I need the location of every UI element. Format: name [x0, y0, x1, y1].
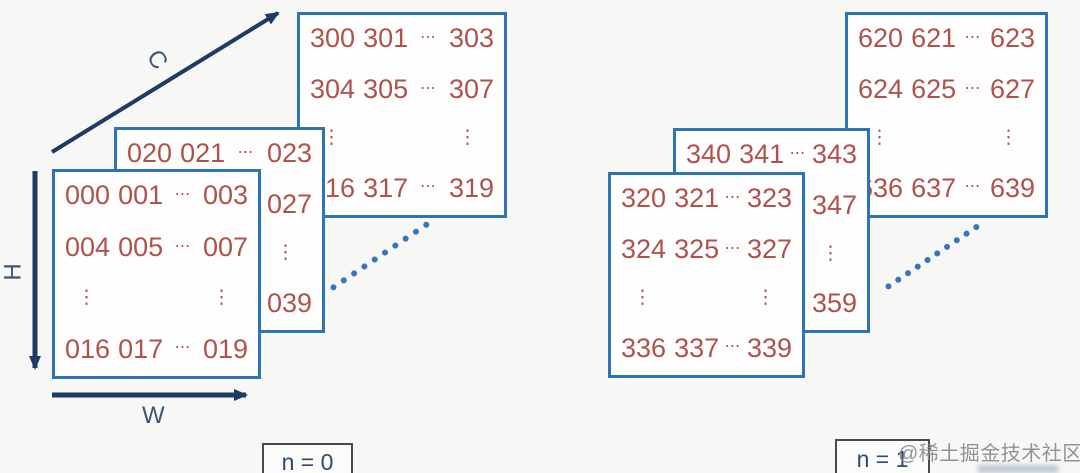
matrix-value: 343 [812, 140, 857, 168]
matrix-row: 300301⋯303 [300, 24, 504, 52]
matrix-value: 039 [267, 289, 312, 317]
matrix-value: 027 [267, 190, 312, 218]
vertical-ellipsis: ⋮ [633, 286, 652, 311]
matrix-row: 324325⋯327 [611, 235, 802, 263]
horizontal-ellipsis: ⋯ [163, 239, 203, 256]
vertical-ellipsis: ⋮ [276, 241, 295, 266]
matrix-value: 623 [990, 24, 1035, 52]
matrix-row: 636637⋯639 [848, 174, 1045, 202]
matrix-value: 005 [118, 233, 163, 261]
horizontal-ellipsis: ⋯ [719, 190, 747, 207]
matrix-value: 323 [747, 184, 792, 212]
matrix-value: 359 [812, 289, 857, 317]
matrix-value: 320 [621, 184, 666, 212]
batch-label-n0-text: n = 0 [282, 449, 334, 473]
matrix-value: 001 [118, 181, 163, 209]
horizontal-ellipsis: ⋯ [719, 339, 747, 356]
matrix-row: 340341⋯343 [676, 140, 867, 168]
matrix-value: 347 [812, 191, 857, 219]
matrix-value: 301 [363, 24, 408, 52]
watermark-text: @稀土掘金技术社区 [898, 437, 1080, 466]
tensor-layout-diagram: C H W 300301⋯303304305⋯307⋮⋮316317⋯319 0… [0, 0, 1080, 473]
vertical-ellipsis: ⋮ [821, 242, 840, 267]
watermark-blur-line [978, 465, 1058, 473]
matrix-value: 300 [310, 24, 355, 52]
matrix-value: 324 [621, 235, 666, 263]
horizontal-ellipsis: ⋯ [163, 187, 203, 204]
horizontal-ellipsis: ⋯ [408, 30, 449, 47]
horizontal-ellipsis: ⋯ [719, 241, 747, 258]
matrix-n1-channel-back: 620621⋯623624625⋯627⋮⋮636637⋯639 [845, 12, 1048, 218]
depth-ellipsis-dots-n1 [884, 223, 980, 291]
depth-ellipsis-dots-n0 [329, 221, 430, 292]
matrix-ellipsis-row: ⋮⋮ [611, 286, 802, 311]
matrix-row: 624625⋯627 [848, 75, 1045, 103]
vertical-ellipsis: ⋮ [77, 286, 96, 311]
matrix-value: 023 [267, 139, 312, 167]
matrix-value: 327 [747, 235, 792, 263]
matrix-value: 336 [621, 334, 666, 362]
matrix-n0-channel-back: 300301⋯303304305⋯307⋮⋮316317⋯319 [297, 12, 507, 218]
matrix-value: 620 [858, 24, 903, 52]
matrix-row: 004005⋯007 [55, 233, 258, 261]
horizontal-ellipsis: ⋯ [784, 146, 812, 163]
matrix-value: 319 [449, 174, 494, 202]
horizontal-ellipsis: ⋯ [408, 81, 449, 98]
matrix-value: 637 [911, 174, 956, 202]
matrix-value: 019 [203, 335, 248, 363]
vertical-ellipsis: ⋮ [756, 286, 775, 311]
matrix-row: 316317⋯319 [300, 174, 504, 202]
horizontal-ellipsis: ⋯ [225, 145, 267, 162]
vertical-ellipsis: ⋮ [999, 126, 1018, 151]
matrix-value: 020 [127, 139, 172, 167]
matrix-row: 620621⋯623 [848, 24, 1045, 52]
matrix-value: 017 [118, 335, 163, 363]
matrix-n1-channel-front: 320321⋯323324325⋯327⋮⋮336337⋯339 [608, 172, 805, 378]
matrix-value: 341 [739, 140, 784, 168]
matrix-value: 004 [65, 233, 110, 261]
horizontal-ellipsis: ⋯ [956, 81, 990, 98]
matrix-value: 317 [363, 174, 408, 202]
axis-label-w: W [142, 402, 165, 430]
horizontal-ellipsis: ⋯ [956, 30, 990, 47]
matrix-row: 336337⋯339 [611, 334, 802, 362]
horizontal-ellipsis: ⋯ [408, 179, 449, 196]
matrix-value: 627 [990, 75, 1035, 103]
matrix-value: 321 [674, 184, 719, 212]
matrix-ellipsis-row: ⋮⋮ [848, 126, 1045, 151]
horizontal-ellipsis: ⋯ [163, 340, 203, 357]
matrix-value: 307 [449, 75, 494, 103]
matrix-value: 625 [911, 75, 956, 103]
matrix-row: 020021⋯023 [117, 139, 322, 167]
vertical-ellipsis: ⋮ [458, 126, 477, 151]
matrix-value: 000 [65, 181, 110, 209]
vertical-ellipsis: ⋮ [870, 126, 889, 151]
matrix-value: 003 [203, 181, 248, 209]
matrix-value: 337 [674, 334, 719, 362]
horizontal-ellipsis: ⋯ [956, 179, 990, 196]
matrix-row: 304305⋯307 [300, 75, 504, 103]
matrix-row: 000001⋯003 [55, 181, 258, 209]
matrix-value: 021 [180, 139, 225, 167]
matrix-value: 303 [449, 24, 494, 52]
matrix-row: 016017⋯019 [55, 335, 258, 363]
matrix-value: 340 [686, 140, 731, 168]
matrix-value: 639 [990, 174, 1035, 202]
matrix-value: 016 [65, 335, 110, 363]
matrix-ellipsis-row: ⋮⋮ [55, 286, 258, 311]
axis-label-h: H [0, 263, 28, 280]
axis-label-c: C [140, 45, 173, 75]
matrix-value: 305 [363, 75, 408, 103]
matrix-value: 624 [858, 75, 903, 103]
matrix-ellipsis-row: ⋮⋮ [300, 126, 504, 151]
matrix-n0-channel-front: 000001⋯003004005⋯007⋮⋮016017⋯019 [52, 169, 261, 379]
matrix-value: 325 [674, 235, 719, 263]
batch-label-n0: n = 0 [262, 443, 353, 473]
matrix-row: 320321⋯323 [611, 184, 802, 212]
matrix-value: 339 [747, 334, 792, 362]
matrix-value: 621 [911, 24, 956, 52]
matrix-value: 304 [310, 75, 355, 103]
vertical-ellipsis: ⋮ [212, 286, 231, 311]
matrix-value: 007 [203, 233, 248, 261]
